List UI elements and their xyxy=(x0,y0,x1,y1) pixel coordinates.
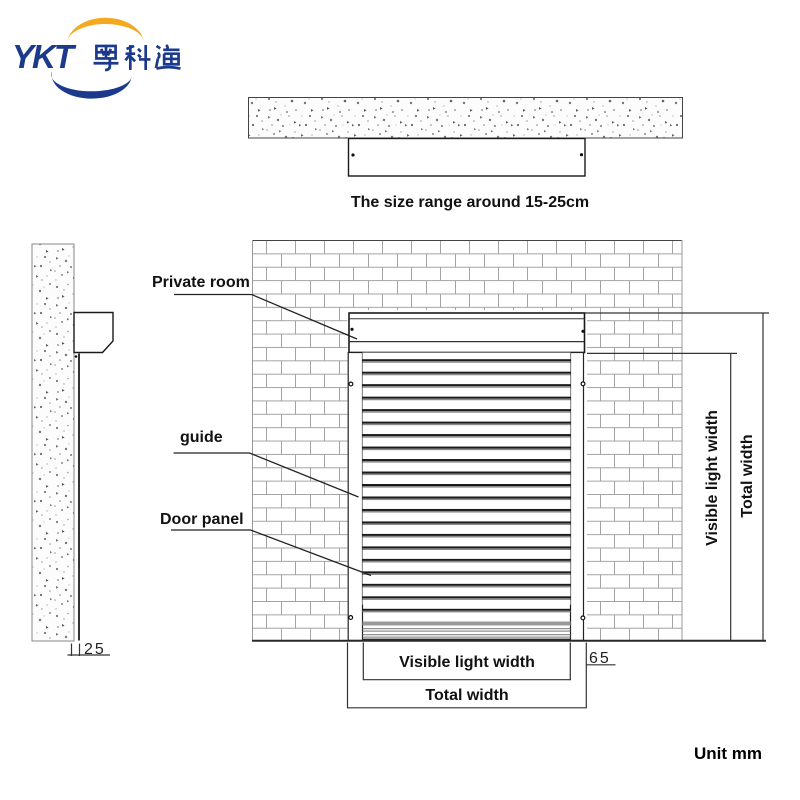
svg-text:Door panel: Door panel xyxy=(160,511,244,528)
svg-text:65: 65 xyxy=(589,650,611,667)
svg-text:Total width: Total width xyxy=(425,687,508,704)
svg-text:guide: guide xyxy=(180,429,223,446)
svg-text:Unit mm: Unit mm xyxy=(694,744,762,763)
svg-text:The size range around 15-25cm: The size range around 15-25cm xyxy=(351,194,589,211)
svg-text:25: 25 xyxy=(84,641,106,658)
svg-text:Total width: Total width xyxy=(739,434,756,517)
svg-text:Private room: Private room xyxy=(152,274,250,291)
svg-text:YKT: YKT xyxy=(12,38,77,75)
svg-text:Visible light width: Visible light width xyxy=(704,410,721,546)
svg-text:Visible light width: Visible light width xyxy=(399,654,535,671)
